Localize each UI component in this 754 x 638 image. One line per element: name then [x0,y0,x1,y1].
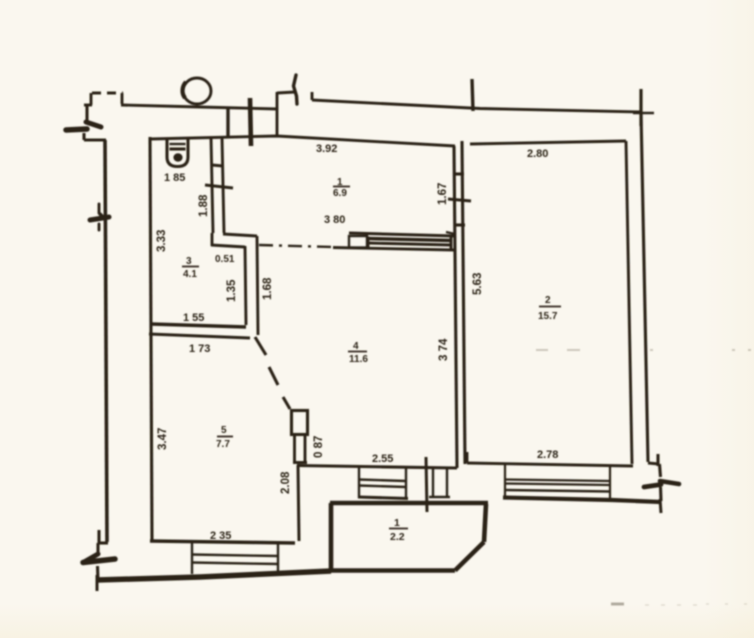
svg-text:4.1: 4.1 [183,269,197,280]
svg-text:1.67: 1.67 [437,183,449,205]
svg-text:3.47: 3.47 [157,428,169,450]
svg-text:1.68: 1.68 [262,277,274,300]
svg-text:3 80: 3 80 [324,214,345,226]
svg-text:6.9: 6.9 [333,188,347,199]
svg-text:1 85: 1 85 [164,172,185,184]
svg-text:4: 4 [353,341,359,352]
svg-text:2.2: 2.2 [390,531,405,543]
svg-text:1.88: 1.88 [198,194,210,217]
svg-text:1 55: 1 55 [183,312,204,324]
svg-text:11.6: 11.6 [349,354,368,365]
svg-text:2.80: 2.80 [527,148,548,160]
svg-text:2.08: 2.08 [280,471,292,494]
svg-text:3: 3 [186,256,192,267]
svg-text:5: 5 [221,425,227,436]
svg-text:7.7: 7.7 [216,439,230,450]
svg-text:2 35: 2 35 [210,530,231,542]
svg-text:2: 2 [545,295,551,306]
svg-text:1: 1 [394,517,400,529]
svg-text:1 73: 1 73 [189,343,210,355]
svg-text:1.35: 1.35 [226,279,238,302]
svg-text:3.92: 3.92 [316,143,337,155]
svg-text:3 74: 3 74 [438,338,450,361]
svg-text:0 87: 0 87 [313,436,325,458]
svg-text:15.7: 15.7 [538,311,558,322]
svg-text:3.33: 3.33 [156,230,168,252]
svg-text:0.51: 0.51 [215,254,235,265]
svg-text:2.55: 2.55 [372,453,393,465]
svg-text:2.78: 2.78 [537,449,558,461]
svg-text:5.63: 5.63 [472,273,484,295]
